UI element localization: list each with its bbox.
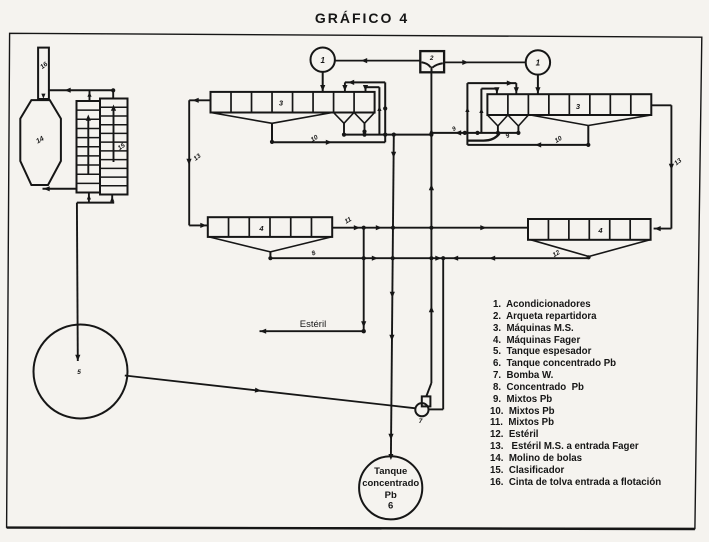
svg-text:5: 5	[77, 369, 81, 376]
svg-text:13: 13	[673, 157, 683, 167]
svg-text:8: 8	[311, 249, 318, 257]
svg-text:4: 4	[597, 226, 603, 235]
svg-text:1: 1	[320, 56, 325, 65]
svg-text:3: 3	[576, 102, 581, 111]
svg-text:Pb: Pb	[385, 490, 397, 501]
svg-text:10: 10	[554, 135, 564, 145]
svg-text:9: 9	[452, 126, 458, 133]
svg-text:concentrado: concentrado	[362, 478, 419, 489]
svg-text:7: 7	[419, 418, 423, 425]
svg-text:6: 6	[388, 501, 393, 512]
svg-text:1: 1	[536, 59, 541, 68]
svg-text:3: 3	[279, 99, 284, 108]
svg-text:Tanque: Tanque	[374, 466, 407, 477]
svg-text:14: 14	[35, 135, 45, 145]
svg-text:13: 13	[192, 152, 202, 162]
svg-text:4: 4	[258, 224, 264, 233]
svg-text:2: 2	[429, 55, 434, 62]
svg-text:Estéril: Estéril	[300, 319, 326, 330]
svg-text:11: 11	[344, 216, 354, 226]
